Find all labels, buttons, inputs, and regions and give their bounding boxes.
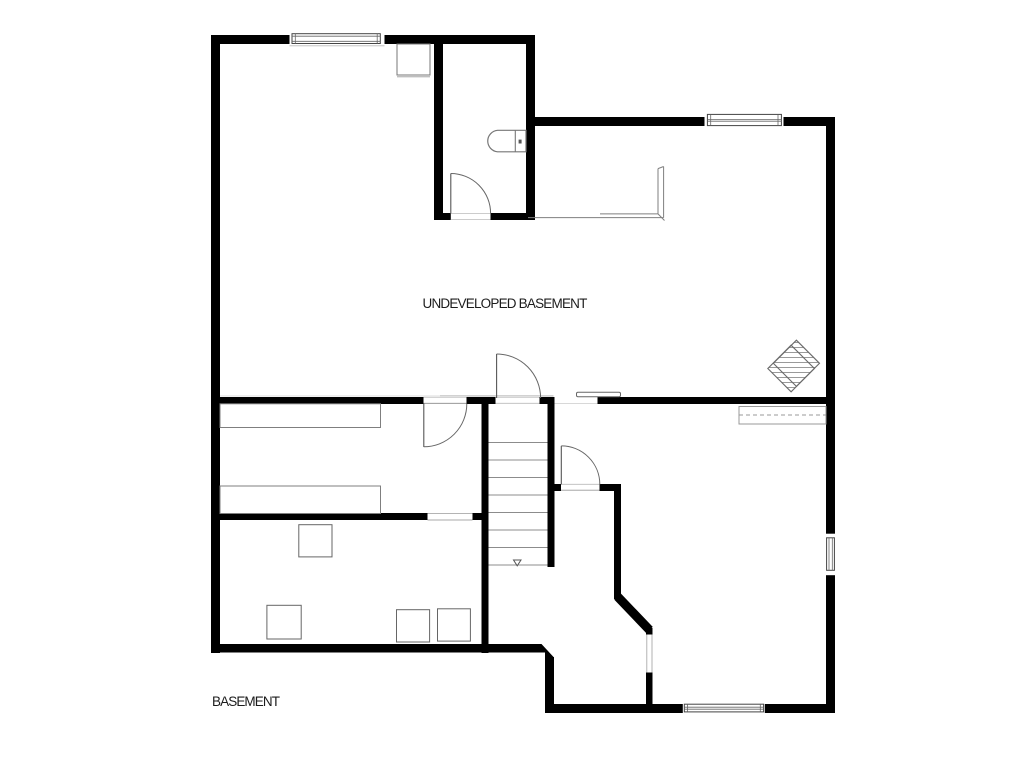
svg-text:UNDEVELOPED BASEMENT: UNDEVELOPED BASEMENT xyxy=(423,296,588,311)
svg-text:BASEMENT: BASEMENT xyxy=(212,694,280,709)
